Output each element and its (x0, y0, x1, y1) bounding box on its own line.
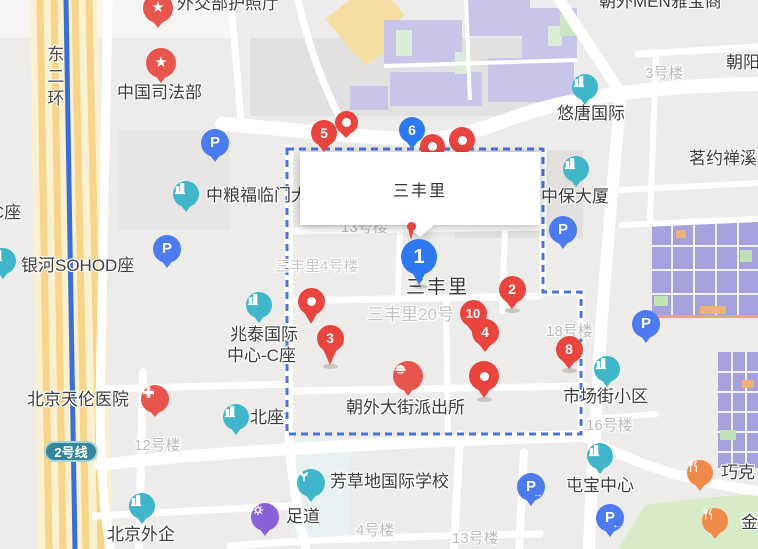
map-base (0, 0, 758, 549)
popup-title: 三丰里 (300, 152, 540, 225)
location-info-popup: 三丰里 (300, 152, 540, 225)
map-canvas[interactable]: 外交部护照厅朝外MEN雅宝商中国司法部朝阳3号楼悠唐国际茗约禅溪中保大厦中粮福临… (0, 0, 758, 549)
popup-pointer (406, 225, 434, 237)
